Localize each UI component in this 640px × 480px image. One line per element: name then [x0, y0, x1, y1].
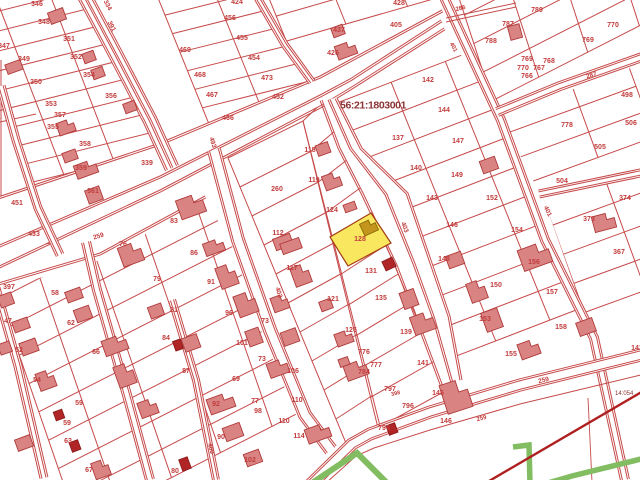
svg-text:98: 98	[254, 408, 262, 415]
svg-text:349: 349	[18, 56, 30, 63]
svg-text:119: 119	[308, 177, 319, 184]
svg-text:260: 260	[271, 186, 283, 193]
svg-text:433: 433	[28, 231, 40, 238]
svg-text:770: 770	[607, 22, 619, 29]
svg-text:452: 452	[272, 94, 284, 101]
svg-text:96: 96	[225, 310, 233, 317]
svg-text:428: 428	[393, 0, 405, 7]
svg-text:766: 766	[521, 73, 533, 80]
svg-text:86: 86	[190, 250, 198, 257]
svg-text:69: 69	[232, 376, 240, 383]
svg-text:426: 426	[327, 50, 339, 57]
svg-text:776: 776	[358, 349, 370, 356]
svg-text:147: 147	[452, 138, 464, 145]
svg-text:397: 397	[3, 284, 15, 291]
svg-text:59: 59	[63, 420, 71, 427]
svg-text:149: 149	[451, 172, 463, 179]
svg-text:505: 505	[594, 144, 606, 151]
svg-text:59: 59	[75, 400, 83, 407]
svg-text:141: 141	[417, 360, 429, 367]
svg-text:358: 358	[79, 141, 91, 148]
svg-text:84: 84	[162, 335, 170, 342]
svg-text:106: 106	[287, 368, 299, 375]
svg-text:142: 142	[422, 77, 434, 84]
svg-text:146: 146	[440, 418, 452, 425]
svg-text:131: 131	[365, 268, 377, 275]
svg-text:77: 77	[251, 398, 259, 405]
svg-text:788: 788	[485, 38, 497, 45]
svg-text:437: 437	[333, 27, 345, 34]
svg-text:83: 83	[170, 218, 178, 225]
svg-text:769: 769	[582, 37, 594, 44]
svg-text:67: 67	[85, 467, 93, 474]
svg-text:117: 117	[286, 265, 297, 272]
svg-text:110: 110	[278, 418, 289, 425]
svg-text:137: 137	[392, 135, 404, 142]
svg-text:451: 451	[11, 200, 23, 207]
svg-text:143: 143	[426, 195, 438, 202]
svg-text:357: 357	[54, 112, 66, 119]
svg-text:87: 87	[182, 368, 190, 375]
svg-text:789: 789	[531, 7, 543, 14]
svg-text:355: 355	[47, 124, 59, 131]
svg-text:80: 80	[171, 468, 179, 475]
svg-text:354: 354	[83, 72, 95, 79]
svg-text:143: 143	[631, 345, 640, 352]
svg-text:498: 498	[621, 92, 633, 99]
svg-text:339: 339	[141, 160, 153, 167]
svg-text:63: 63	[64, 438, 72, 445]
svg-text:473: 473	[261, 75, 273, 82]
svg-text:14:054: 14:054	[615, 391, 634, 397]
svg-text:62: 62	[67, 320, 75, 327]
svg-text:91: 91	[207, 279, 215, 286]
svg-text:54: 54	[33, 377, 41, 384]
svg-text:112: 112	[272, 230, 283, 237]
svg-text:81: 81	[170, 307, 178, 314]
svg-text:506: 506	[625, 120, 637, 127]
svg-text:466: 466	[222, 115, 234, 122]
svg-text:778: 778	[561, 122, 573, 129]
svg-text:454: 454	[248, 55, 260, 62]
svg-text:155: 155	[505, 351, 517, 358]
svg-text:768: 768	[543, 58, 555, 65]
svg-text:90: 90	[217, 434, 225, 441]
svg-text:58: 58	[51, 290, 59, 297]
svg-text:467: 467	[206, 92, 218, 99]
svg-text:469: 469	[179, 47, 191, 54]
svg-text:73: 73	[258, 356, 266, 363]
svg-text:353: 353	[45, 101, 57, 108]
svg-text:158: 158	[555, 324, 567, 331]
svg-text:152: 152	[486, 195, 498, 202]
svg-text:787: 787	[502, 21, 514, 28]
svg-text:153: 153	[479, 316, 491, 323]
svg-text:115: 115	[304, 147, 315, 154]
svg-text:146: 146	[446, 222, 458, 229]
svg-text:47: 47	[4, 318, 12, 325]
svg-text:796: 796	[378, 425, 390, 432]
svg-text:455: 455	[236, 35, 248, 42]
svg-text:154: 154	[511, 227, 523, 234]
svg-text:350: 350	[30, 79, 42, 86]
svg-text:101: 101	[236, 340, 248, 347]
svg-text:424: 424	[231, 0, 243, 6]
svg-text:777: 777	[370, 362, 382, 369]
svg-text:504: 504	[556, 178, 568, 185]
svg-text:56:21:1803001: 56:21:1803001	[340, 100, 407, 112]
svg-text:139: 139	[400, 329, 412, 336]
svg-text:352: 352	[70, 54, 82, 61]
svg-text:144: 144	[438, 107, 450, 114]
svg-text:145: 145	[432, 390, 444, 397]
svg-text:156: 156	[528, 259, 540, 266]
svg-text:347: 347	[0, 43, 10, 50]
svg-text:140: 140	[410, 165, 422, 172]
svg-text:405: 405	[390, 22, 402, 29]
svg-text:121: 121	[327, 296, 339, 303]
svg-text:359: 359	[75, 165, 87, 172]
svg-text:373: 373	[583, 216, 595, 223]
svg-text:66: 66	[92, 349, 100, 356]
svg-text:456: 456	[224, 15, 236, 22]
svg-text:128: 128	[354, 236, 366, 243]
svg-text:374: 374	[619, 195, 631, 202]
svg-text:767: 767	[533, 65, 545, 72]
svg-text:102: 102	[244, 457, 256, 464]
svg-text:124: 124	[326, 207, 338, 214]
svg-text:769: 769	[521, 56, 533, 63]
svg-text:361: 361	[87, 188, 99, 195]
svg-text:92: 92	[212, 401, 220, 408]
svg-text:351: 351	[63, 36, 75, 43]
svg-text:52: 52	[15, 347, 23, 354]
svg-text:468: 468	[194, 72, 206, 79]
svg-text:126: 126	[345, 327, 357, 334]
svg-text:110: 110	[291, 397, 302, 404]
svg-text:356: 356	[105, 93, 117, 100]
svg-text:150: 150	[490, 282, 502, 289]
svg-text:114: 114	[293, 433, 304, 440]
svg-text:346: 346	[31, 1, 43, 8]
svg-text:367: 367	[613, 249, 625, 256]
svg-text:784: 784	[358, 369, 370, 376]
svg-text:148: 148	[438, 256, 450, 263]
svg-text:157: 157	[546, 289, 558, 296]
svg-text:135: 135	[375, 295, 387, 302]
svg-text:796: 796	[402, 403, 414, 410]
svg-text:79: 79	[153, 276, 161, 283]
svg-text:73: 73	[261, 318, 269, 325]
svg-text:770: 770	[517, 65, 529, 72]
svg-text:348: 348	[38, 19, 50, 26]
svg-text:76: 76	[119, 241, 127, 248]
